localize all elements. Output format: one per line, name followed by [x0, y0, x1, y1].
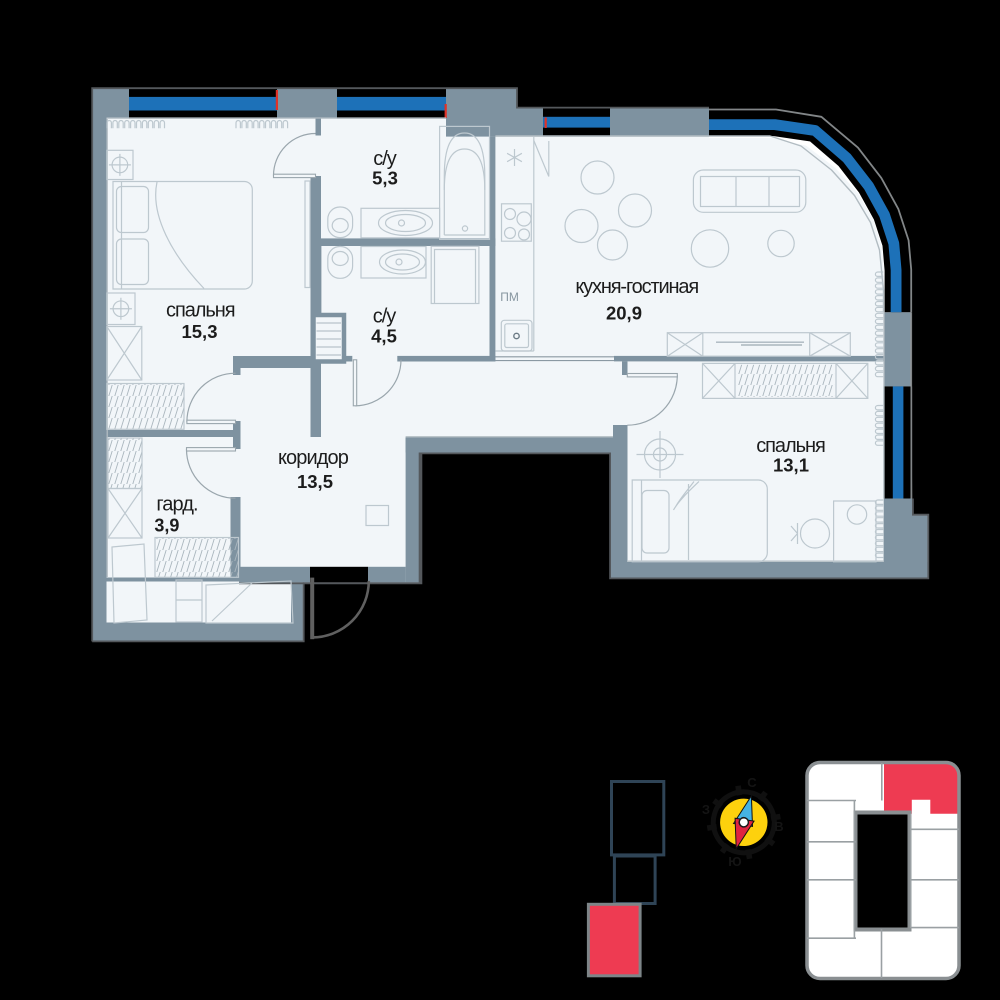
- svg-text:ПМ: ПМ: [500, 290, 519, 304]
- svg-text:15,3: 15,3: [181, 321, 217, 342]
- svg-text:спальня: спальня: [166, 300, 235, 322]
- svg-text:20,9: 20,9: [606, 302, 642, 323]
- svg-text:кухня-гостиная: кухня-гостиная: [575, 276, 698, 298]
- svg-text:гард.: гард.: [156, 494, 197, 516]
- svg-text:коридор: коридор: [278, 447, 349, 469]
- svg-text:13,5: 13,5: [297, 471, 333, 492]
- svg-text:З: З: [702, 802, 710, 817]
- svg-text:В: В: [774, 819, 783, 834]
- svg-text:с/у: с/у: [373, 306, 396, 328]
- svg-text:5,3: 5,3: [372, 168, 398, 189]
- svg-text:Ю: Ю: [728, 854, 741, 869]
- svg-text:13,1: 13,1: [773, 455, 809, 476]
- svg-text:3,9: 3,9: [154, 516, 179, 536]
- svg-text:4,5: 4,5: [371, 326, 397, 347]
- svg-text:С: С: [747, 775, 757, 790]
